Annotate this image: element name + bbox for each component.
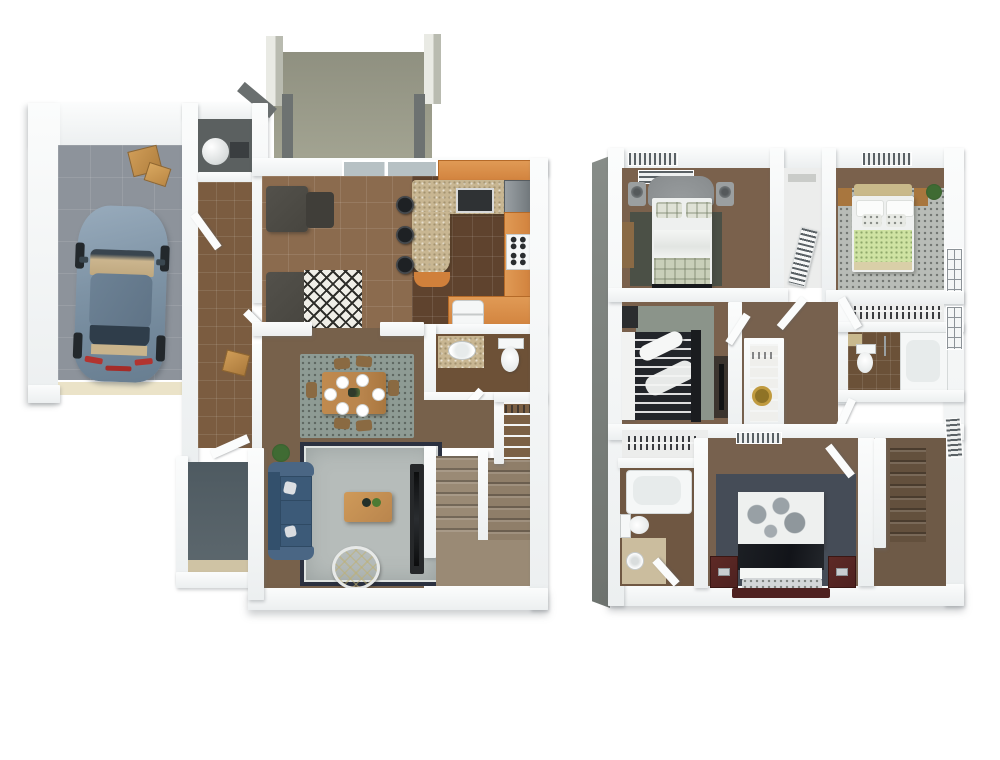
- dining-chair: [334, 357, 351, 369]
- gold-decor: [752, 386, 772, 406]
- bedroom1-dresser: [622, 222, 634, 268]
- island-cabinet-base: [414, 272, 450, 287]
- dinner-plate: [336, 376, 349, 389]
- kitchen-sink-dark: [456, 188, 494, 213]
- bedroom1-top-window: [628, 152, 678, 166]
- tv-screen: [414, 472, 419, 566]
- bar-stool: [396, 256, 414, 274]
- wall-bed1-bed3: [608, 288, 788, 302]
- master-headboard: [732, 588, 830, 598]
- hall-wall-left: [182, 103, 198, 463]
- dinner-plate: [356, 374, 369, 387]
- garage-wall-left: [28, 103, 60, 403]
- bed1-plaid-blanket: [654, 258, 710, 284]
- bedroom3-tv: [719, 364, 724, 410]
- table-centerpiece: [348, 388, 360, 397]
- master-bed-duvet: [738, 492, 824, 548]
- master-toilet-bowl: [629, 516, 649, 534]
- sofa-cushion: [280, 500, 312, 525]
- bar-stool: [396, 196, 414, 214]
- bar-stool: [396, 226, 414, 244]
- dining-chair: [388, 380, 399, 396]
- garage-wall-bottom-cap: [28, 385, 60, 403]
- car-wheel: [156, 335, 166, 361]
- dinner-plate: [372, 388, 385, 401]
- sectional-sofa-top-chaise: [306, 192, 334, 228]
- patio-pillar-base-left: [282, 94, 293, 160]
- bed2-foot-rail: [854, 262, 912, 270]
- stairs2-half-wall: [874, 438, 886, 548]
- car-parcel-shelf: [91, 344, 147, 356]
- plant-pot: [272, 444, 290, 462]
- masterbath-wall-right: [694, 438, 708, 588]
- bedroom2-top-window: [862, 152, 912, 166]
- wall-stub-family-dining-left: [252, 322, 312, 336]
- patio-pillar-base-right: [414, 94, 425, 160]
- bed1-lamp: [719, 186, 731, 198]
- dinner-plate: [356, 404, 369, 417]
- bath2-towel-bar: [884, 336, 886, 356]
- utility-appliance: [230, 142, 249, 158]
- bed2-nightstand: [838, 188, 852, 206]
- bed1-lamp: [631, 186, 643, 198]
- bath2-toilet-bowl: [857, 352, 873, 373]
- stair-flight-right: [488, 458, 530, 540]
- coffee-table-plant: [372, 498, 381, 507]
- bath2-tub-basin: [906, 340, 940, 382]
- sofa-back: [268, 472, 280, 550]
- bed2-print-pillow: [862, 214, 882, 227]
- dinner-plate: [324, 388, 337, 401]
- car-wheel: [73, 332, 83, 358]
- wall-bottom-perimeter-f1: [248, 588, 548, 610]
- car-wheel: [75, 242, 85, 268]
- wall-left-living: [248, 448, 264, 600]
- pedestal-sink: [626, 552, 644, 570]
- bed3-headboard: [622, 332, 635, 420]
- range-burners: [507, 252, 529, 266]
- range-burners: [507, 236, 529, 250]
- patio-floor: [274, 52, 432, 162]
- sectional-sofa-top: [266, 186, 308, 232]
- ottoman: [332, 546, 380, 590]
- halfbath-sink: [448, 341, 476, 360]
- room-staircase-up: [436, 456, 478, 540]
- bed3-footboard: [691, 330, 701, 422]
- closet1-wall-right: [822, 148, 836, 304]
- bed1-duvet-fold: [654, 230, 710, 258]
- utility-wall-bottom: [198, 172, 252, 182]
- room-porch: [188, 462, 252, 572]
- window-right-1: [946, 248, 963, 292]
- walkin-hanging-clothes: [854, 306, 942, 319]
- dining-chair: [334, 417, 351, 429]
- navy-sofa: [268, 462, 314, 560]
- throw-pillow: [283, 481, 297, 495]
- bedroom2-plant: [926, 184, 942, 200]
- water-heater: [202, 138, 229, 165]
- master-black-blanket: [738, 544, 824, 570]
- bed2-print-pillow: [886, 214, 906, 227]
- room-patio: [266, 34, 442, 164]
- bed1-pillow: [656, 202, 682, 218]
- dining-chair: [356, 419, 373, 431]
- linen-closet-items: [752, 352, 776, 359]
- dining-chair: [306, 382, 317, 398]
- wall-stub-family-dining-right: [380, 322, 424, 336]
- stair-landing: [436, 540, 530, 586]
- nightstand-handle: [718, 568, 730, 576]
- bed1-pillow: [686, 202, 712, 218]
- patio-pillar-left: [266, 36, 283, 106]
- stairwell-wall-left: [424, 446, 436, 558]
- stairs2-vent: [945, 417, 964, 458]
- bedroom3-speaker: [622, 306, 638, 328]
- master-stairs-divider: [858, 438, 874, 586]
- breakfast-bar-island: [412, 212, 450, 274]
- sectional-sofa-left: [266, 272, 308, 328]
- porch-wall-left: [176, 456, 188, 584]
- master-vent: [736, 432, 782, 444]
- wall-right-perimeter-f1: [530, 158, 548, 610]
- stair-railing: [478, 450, 488, 544]
- floorplan-scene: [0, 0, 1000, 760]
- halfbath-wall-top: [424, 324, 546, 334]
- stairs2-flight: [890, 448, 926, 542]
- coffee-table: [344, 492, 392, 522]
- dinner-plate: [336, 402, 349, 415]
- master-tub-basin: [633, 476, 681, 505]
- patio-pillar-right: [424, 34, 441, 104]
- car-rear-badge: [105, 366, 131, 372]
- nightstand-handle: [836, 568, 848, 576]
- car-top-view: [71, 204, 171, 385]
- window-right-2: [946, 306, 963, 350]
- car-roof: [89, 273, 153, 329]
- bed2-green-blanket: [854, 230, 912, 262]
- toilet-bowl: [501, 347, 519, 372]
- bed3-closet-wire: [626, 442, 702, 444]
- halfbath-wall-left: [424, 324, 436, 402]
- car-mirror: [156, 259, 165, 265]
- walkin-wire-shelf: [852, 310, 942, 312]
- pantry-shelf-items: [505, 405, 531, 413]
- diamond-rug: [304, 270, 362, 330]
- porch-mat: [188, 560, 252, 572]
- bed2-headboard: [854, 184, 912, 196]
- coffee-table-decor: [362, 498, 371, 507]
- car-mirror: [79, 257, 88, 263]
- dining-chair: [356, 355, 373, 367]
- pantry-wall-left: [494, 392, 504, 464]
- closet1-wall-left: [770, 148, 784, 302]
- closet1-shelf-items: [788, 174, 816, 182]
- porch-wall-bottom: [176, 572, 258, 588]
